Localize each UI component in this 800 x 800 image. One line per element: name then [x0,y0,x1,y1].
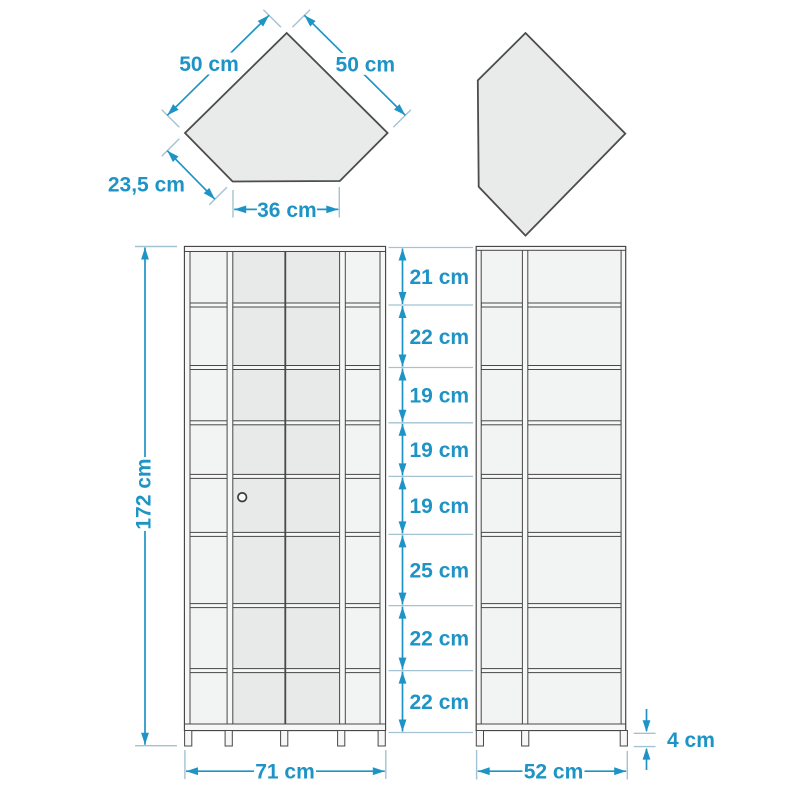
svg-text:19 cm: 19 cm [410,385,470,408]
svg-text:50 cm: 50 cm [336,53,396,76]
svg-text:25 cm: 25 cm [410,560,470,583]
svg-text:22 cm: 22 cm [410,691,470,714]
svg-text:4 cm: 4 cm [667,729,715,752]
svg-text:172 cm: 172 cm [133,458,156,529]
svg-text:22 cm: 22 cm [410,326,470,349]
svg-text:71 cm: 71 cm [255,761,315,784]
svg-text:23,5 cm: 23,5 cm [108,174,185,197]
svg-text:52 cm: 52 cm [524,761,584,784]
svg-text:19 cm: 19 cm [410,495,470,518]
svg-text:50 cm: 50 cm [179,53,239,76]
svg-text:22 cm: 22 cm [410,628,470,651]
svg-text:36 cm: 36 cm [257,199,317,222]
svg-text:21 cm: 21 cm [410,266,470,289]
svg-text:19 cm: 19 cm [410,439,470,462]
